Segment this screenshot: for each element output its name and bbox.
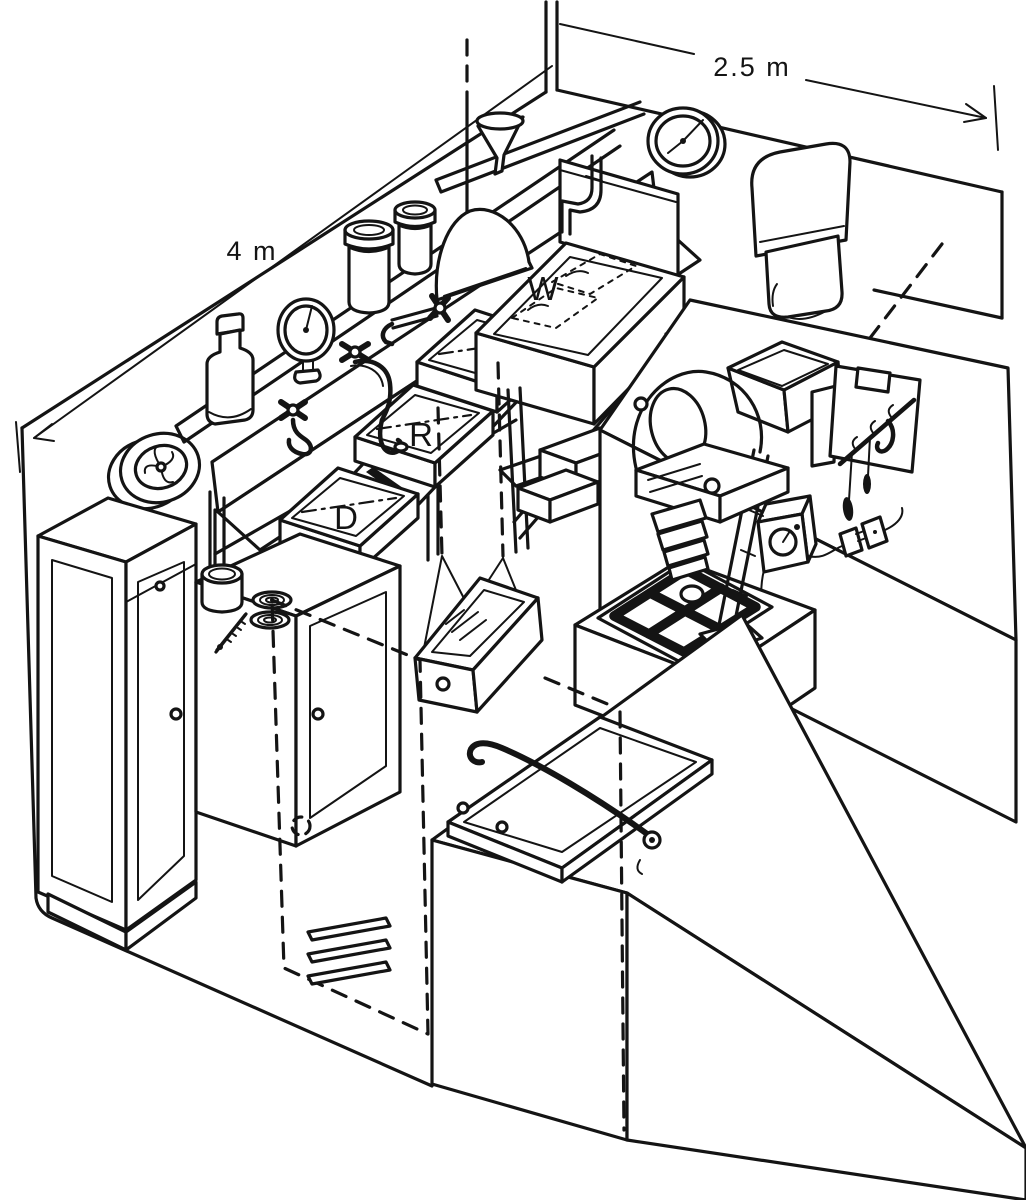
darkroom-isometric-drawing: 4 m 2.5 m bbox=[0, 0, 1026, 1200]
dimension-tick bbox=[16, 422, 20, 472]
developer-tray-label: D bbox=[334, 499, 358, 536]
dimension-width: 2.5 m bbox=[560, 24, 998, 150]
louver-vent-icon bbox=[308, 918, 390, 984]
process-timer-clock-icon bbox=[278, 299, 334, 383]
wall-clock-icon bbox=[648, 108, 725, 177]
wash-sink-label: W bbox=[527, 270, 559, 307]
rinse-tray-label: R bbox=[409, 416, 433, 453]
hanging-safelight-dome-icon bbox=[436, 40, 532, 300]
developing-tank-icon bbox=[202, 565, 242, 612]
chemical-jar-icon bbox=[345, 221, 393, 313]
chemical-jar-small-icon bbox=[395, 202, 435, 274]
dimension-line-a bbox=[560, 24, 694, 54]
dimension-line-b bbox=[806, 80, 986, 118]
dimension-length-label: 4 m bbox=[226, 236, 277, 266]
storage-bottle-icon bbox=[207, 314, 253, 424]
enlarger-lens bbox=[681, 586, 703, 602]
dimension-tick bbox=[994, 86, 998, 150]
arrowhead-icon bbox=[964, 104, 986, 122]
dimension-width-label: 2.5 m bbox=[713, 52, 791, 82]
right-floor-junction bbox=[874, 290, 1002, 318]
darkroom-layout-diagram: 4 m 2.5 m bbox=[0, 0, 1026, 1200]
tall-cupboard-icon bbox=[38, 498, 196, 950]
paper-towel-dispenser-icon bbox=[752, 143, 850, 319]
